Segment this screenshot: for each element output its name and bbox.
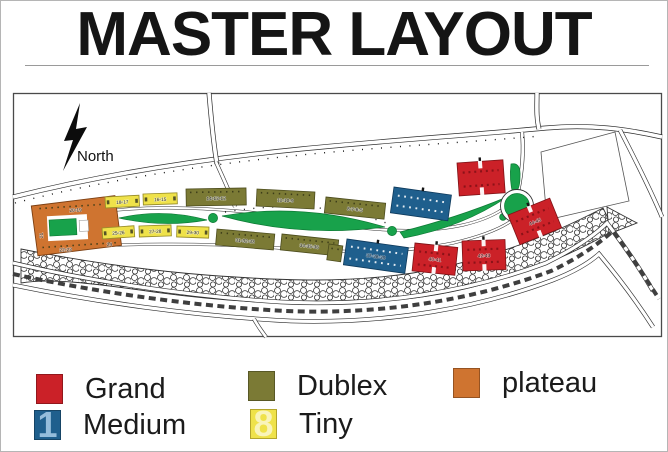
legend-label-plateau: plateau	[502, 367, 597, 399]
legend-item-tiny: 8 Tiny	[250, 408, 353, 440]
green-circle-2	[387, 226, 396, 235]
building-label: 14▫13▫12	[206, 196, 226, 202]
building-dublex-14-12: 14▫13▫12	[186, 188, 246, 206]
legend-swatch-grand	[36, 374, 63, 404]
building-label: 25▫26	[112, 230, 125, 237]
master-layout-page: MASTER LAYOUT	[0, 0, 668, 452]
building-tiny-27-28: 27▫28	[139, 225, 171, 237]
building-label: 27▫28	[149, 229, 162, 235]
legend-item-grand: Grand	[36, 373, 166, 405]
legend-swatch-tiny: 8	[250, 409, 277, 439]
legend-item-medium: 1 Medium	[34, 409, 186, 441]
building-grand-42-43: 42▫43	[462, 236, 506, 272]
building-label: 20▫19	[69, 207, 82, 214]
building-tiny-29-30: 29▫30	[177, 226, 209, 238]
watermark-digit: 1	[35, 411, 60, 439]
building-tiny-16-15: 16▫15	[143, 193, 177, 205]
courtyard-green	[49, 219, 77, 236]
building-label: 22▫23	[59, 247, 72, 254]
legend-item-plateau: plateau	[453, 367, 597, 399]
building-dublex-11-9: 11▫10▫9	[256, 189, 315, 209]
building-tiny-25-26: 25▫26	[102, 226, 135, 239]
building-label: 18▫17	[116, 199, 129, 206]
building-dublex-end	[327, 244, 343, 262]
legend-swatch-medium: 1	[34, 410, 61, 440]
watermark-digit: 8	[251, 410, 276, 438]
building-label: 21	[39, 232, 45, 238]
legend-label-tiny: Tiny	[299, 408, 353, 440]
legend: Grand Dublex plateau 1 Medium 8 Tiny	[1, 353, 668, 452]
building-label: 29▫30	[186, 230, 199, 236]
legend-item-dublex: Dublex	[248, 370, 387, 402]
building-tiny-18-17: 18▫17	[105, 195, 140, 208]
building-label: 42▫43	[478, 253, 491, 259]
road-branch-top-right	[537, 93, 539, 129]
north-label: North	[77, 148, 114, 165]
building-label: 16▫15	[154, 197, 167, 203]
green-circle-1	[208, 213, 217, 222]
building-label: 11▫10▫9	[277, 198, 294, 205]
legend-swatch-plateau	[453, 368, 480, 398]
building-label: 24	[107, 242, 113, 248]
legend-swatch-dublex	[248, 371, 275, 401]
legend-label-medium: Medium	[83, 409, 186, 441]
legend-label-dublex: Dublex	[297, 370, 387, 402]
legend-label-grand: Grand	[85, 373, 166, 405]
